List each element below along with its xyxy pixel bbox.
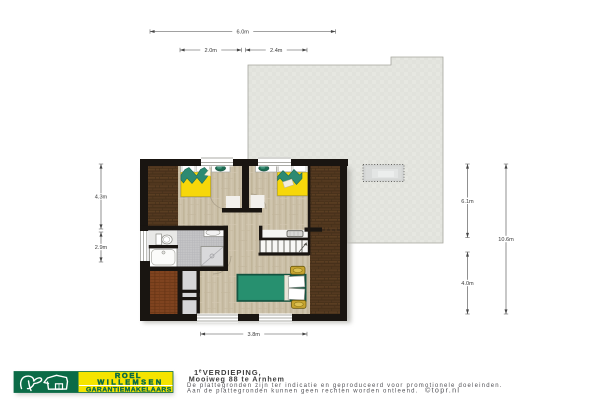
svg-text:4.3m: 4.3m (95, 195, 108, 201)
svg-text:2.4m: 2.4m (270, 48, 283, 54)
svg-text:6.0m: 6.0m (237, 30, 250, 36)
svg-text:e: e (199, 368, 202, 374)
svg-text:3.8m: 3.8m (248, 332, 261, 338)
svg-text:4.0m: 4.0m (461, 281, 474, 287)
svg-text:6.1m: 6.1m (461, 199, 474, 205)
svg-text:2.0m: 2.0m (205, 48, 218, 54)
svg-text:Aan de plattegronden kunnen ge: Aan de plattegronden kunnen geen rechten… (187, 389, 419, 395)
svg-text:10.6m: 10.6m (498, 237, 514, 243)
svg-text:GARANTIEMAKELAARS: GARANTIEMAKELAARS (86, 387, 172, 394)
svg-text:2.9m: 2.9m (95, 245, 108, 251)
svg-text:©topr.nl: ©topr.nl (425, 386, 460, 395)
